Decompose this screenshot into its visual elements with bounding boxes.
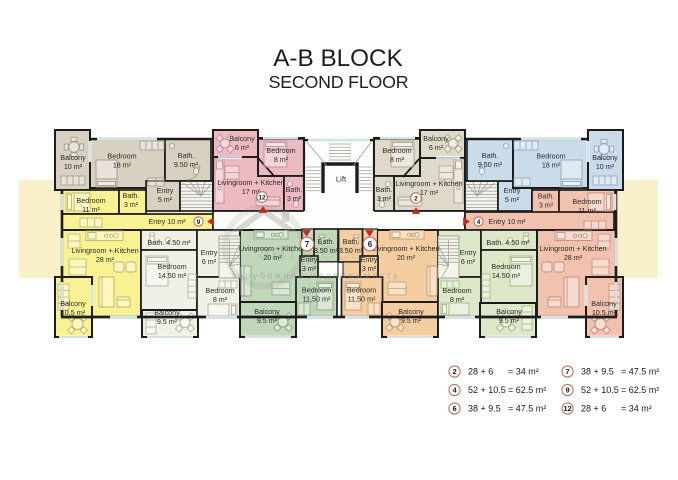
svg-text:11 m²: 11 m²: [578, 206, 596, 215]
svg-text:38 + 9.5: 38 + 9.5: [468, 404, 501, 414]
svg-text:10 m²: 10 m²: [64, 162, 83, 171]
svg-text:= 62.5 m²: = 62.5 m²: [508, 385, 546, 395]
svg-text:5 m²: 5 m²: [158, 195, 173, 204]
svg-text:3 m²: 3 m²: [539, 200, 554, 209]
svg-text:11 m²: 11 m²: [82, 205, 100, 214]
svg-text:Entry 10 m²: Entry 10 m²: [148, 217, 186, 226]
svg-text:SECOND FLOOR: SECOND FLOOR: [269, 72, 409, 92]
svg-text:20 m²: 20 m²: [397, 253, 416, 262]
svg-text:6: 6: [368, 240, 373, 249]
svg-text:10.5 m²: 10.5 m²: [592, 308, 617, 317]
svg-text:= 47.5 m²: = 47.5 m²: [508, 404, 546, 414]
svg-text:6: 6: [452, 404, 456, 413]
svg-text:6 m²: 6 m²: [235, 143, 250, 152]
svg-text:52 + 10.5: 52 + 10.5: [581, 385, 619, 395]
svg-text:= 47.5 m²: = 47.5 m²: [621, 367, 659, 377]
svg-text:14.50 m²: 14.50 m²: [158, 271, 187, 280]
svg-text:9.50 m²: 9.50 m²: [174, 160, 199, 169]
svg-text:3 m²: 3 m²: [302, 264, 317, 273]
svg-text:6 m²: 6 m²: [461, 257, 476, 266]
svg-text:2: 2: [452, 367, 456, 376]
svg-text:18 m²: 18 m²: [113, 160, 132, 169]
svg-text:3 m²: 3 m²: [124, 200, 139, 209]
svg-text:= 34 m²: = 34 m²: [621, 404, 652, 414]
svg-text:8 m²: 8 m²: [213, 295, 228, 304]
svg-text:3 m²: 3 m²: [362, 264, 377, 273]
svg-text:18 m²: 18 m²: [542, 160, 561, 169]
svg-text:Bath. 4.50 m²: Bath. 4.50 m²: [147, 238, 191, 247]
svg-text:28 + 6: 28 + 6: [468, 367, 493, 377]
svg-text:3.50 m²: 3.50 m²: [339, 246, 364, 255]
svg-text:5 m²: 5 m²: [505, 195, 520, 204]
svg-text:9: 9: [197, 219, 201, 226]
svg-text:4: 4: [477, 219, 481, 226]
svg-text:12: 12: [258, 194, 266, 201]
svg-text:28 m²: 28 m²: [96, 255, 115, 264]
svg-text:6 m²: 6 m²: [429, 143, 444, 152]
svg-text:= 34 m²: = 34 m²: [508, 367, 539, 377]
svg-text:14.50 m²: 14.50 m²: [492, 271, 521, 280]
svg-text:28 m²: 28 m²: [564, 253, 583, 262]
svg-text:Lift: Lift: [336, 175, 347, 184]
svg-text:9.5 m²: 9.5 m²: [157, 317, 178, 326]
svg-text:7: 7: [305, 240, 310, 249]
svg-text:9.5 m²: 9.5 m²: [401, 316, 422, 325]
svg-text:Entry 10 m²: Entry 10 m²: [488, 217, 526, 226]
svg-text:17 m²: 17 m²: [420, 188, 439, 197]
svg-text:Bath. 4.50 m²: Bath. 4.50 m²: [486, 238, 530, 247]
svg-text:= 62.5 m²: = 62.5 m²: [621, 385, 659, 395]
svg-text:9: 9: [565, 386, 569, 395]
svg-text:52 + 10.5: 52 + 10.5: [468, 385, 506, 395]
svg-text:9.5 m²: 9.5 m²: [499, 316, 520, 325]
svg-text:28 + 6: 28 + 6: [581, 404, 606, 414]
svg-text:3.50 m²: 3.50 m²: [314, 246, 339, 255]
svg-text:8 m²: 8 m²: [450, 295, 465, 304]
svg-text:8 m²: 8 m²: [390, 155, 405, 164]
svg-text:9.50 m²: 9.50 m²: [478, 160, 503, 169]
svg-text:11,50 m²: 11,50 m²: [303, 294, 331, 303]
svg-text:11,50 m²: 11,50 m²: [348, 294, 376, 303]
svg-text:8 m²: 8 m²: [274, 155, 289, 164]
svg-text:38 + 9.5: 38 + 9.5: [581, 367, 614, 377]
svg-text:12: 12: [563, 404, 571, 413]
svg-text:10 m²: 10 m²: [596, 162, 615, 171]
svg-text:20 m²: 20 m²: [263, 253, 282, 262]
svg-text:3 m²: 3 m²: [377, 194, 392, 203]
svg-text:9.5 m²: 9.5 m²: [257, 316, 278, 325]
svg-text:7: 7: [565, 367, 569, 376]
svg-text:3 m²: 3 m²: [287, 194, 302, 203]
svg-text:2: 2: [414, 195, 418, 202]
svg-text:10.5 m²: 10.5 m²: [61, 308, 86, 317]
svg-text:A-B BLOCK: A-B BLOCK: [273, 45, 403, 72]
svg-text:6 m²: 6 m²: [202, 257, 217, 266]
